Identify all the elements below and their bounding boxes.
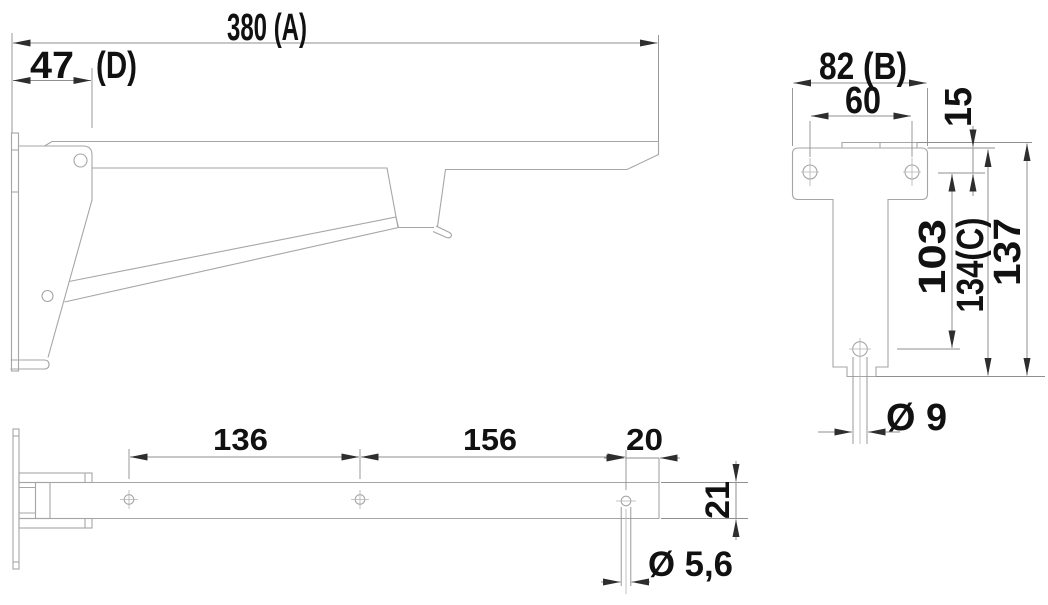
side-view [11, 133, 659, 371]
bracket-drawing-svg: 380 (A) 47 (D) 82 (B) 60 15 103 134(C) 1… [0, 0, 1048, 605]
dimension-labels: 380 (A) 47 (D) 82 (B) 60 15 103 134(C) 1… [30, 7, 1029, 584]
support-arm-bottom-edge [65, 228, 399, 303]
dim-label-top-to-hole: 15 [938, 87, 980, 127]
dim-label-hole-to-end: 20 [626, 422, 663, 457]
dim-label-pivot-offset-note: (D) [96, 45, 137, 87]
wall-plate-side [12, 133, 19, 371]
dim-label-hole-spacing: 60 [845, 80, 881, 122]
dim-label-total-length: 380 (A) [227, 7, 307, 49]
release-hook [433, 226, 452, 238]
dim-label-arm-width: 21 [699, 481, 737, 519]
dim-label-hole-span-2: 156 [463, 422, 517, 457]
bottom-foot [11, 360, 50, 369]
support-arm-top-edge [69, 217, 399, 282]
wall-plate-plan [13, 429, 19, 569]
plan-view [13, 429, 659, 569]
dim-label-pin-diameter: Ø 9 [886, 397, 947, 439]
dim-label-height-c: 134(C) [950, 218, 992, 313]
lower-pivot-hole [42, 291, 53, 302]
dim-label-hole-span-1: 136 [213, 422, 268, 457]
arm-plan-outline [50, 483, 659, 519]
dim-label-pivot-offset: 47 [30, 45, 74, 87]
dim-label-total-height: 137 [987, 218, 1029, 286]
pivot-hole [74, 154, 87, 167]
dimension-lines [12, 33, 1045, 594]
technical-drawing-canvas: 380 (A) 47 (D) 82 (B) 60 15 103 134(C) 1… [0, 0, 1048, 605]
dim-label-hole-diameter: Ø 5,6 [648, 545, 733, 584]
lower-flange [19, 519, 92, 529]
arm-top-profile [45, 142, 659, 227]
mount-bracket-profile [19, 146, 93, 358]
arm-bottom-profile [92, 168, 434, 228]
dim-label-hole-to-pin: 103 [912, 219, 954, 295]
upper-flange [19, 473, 92, 483]
